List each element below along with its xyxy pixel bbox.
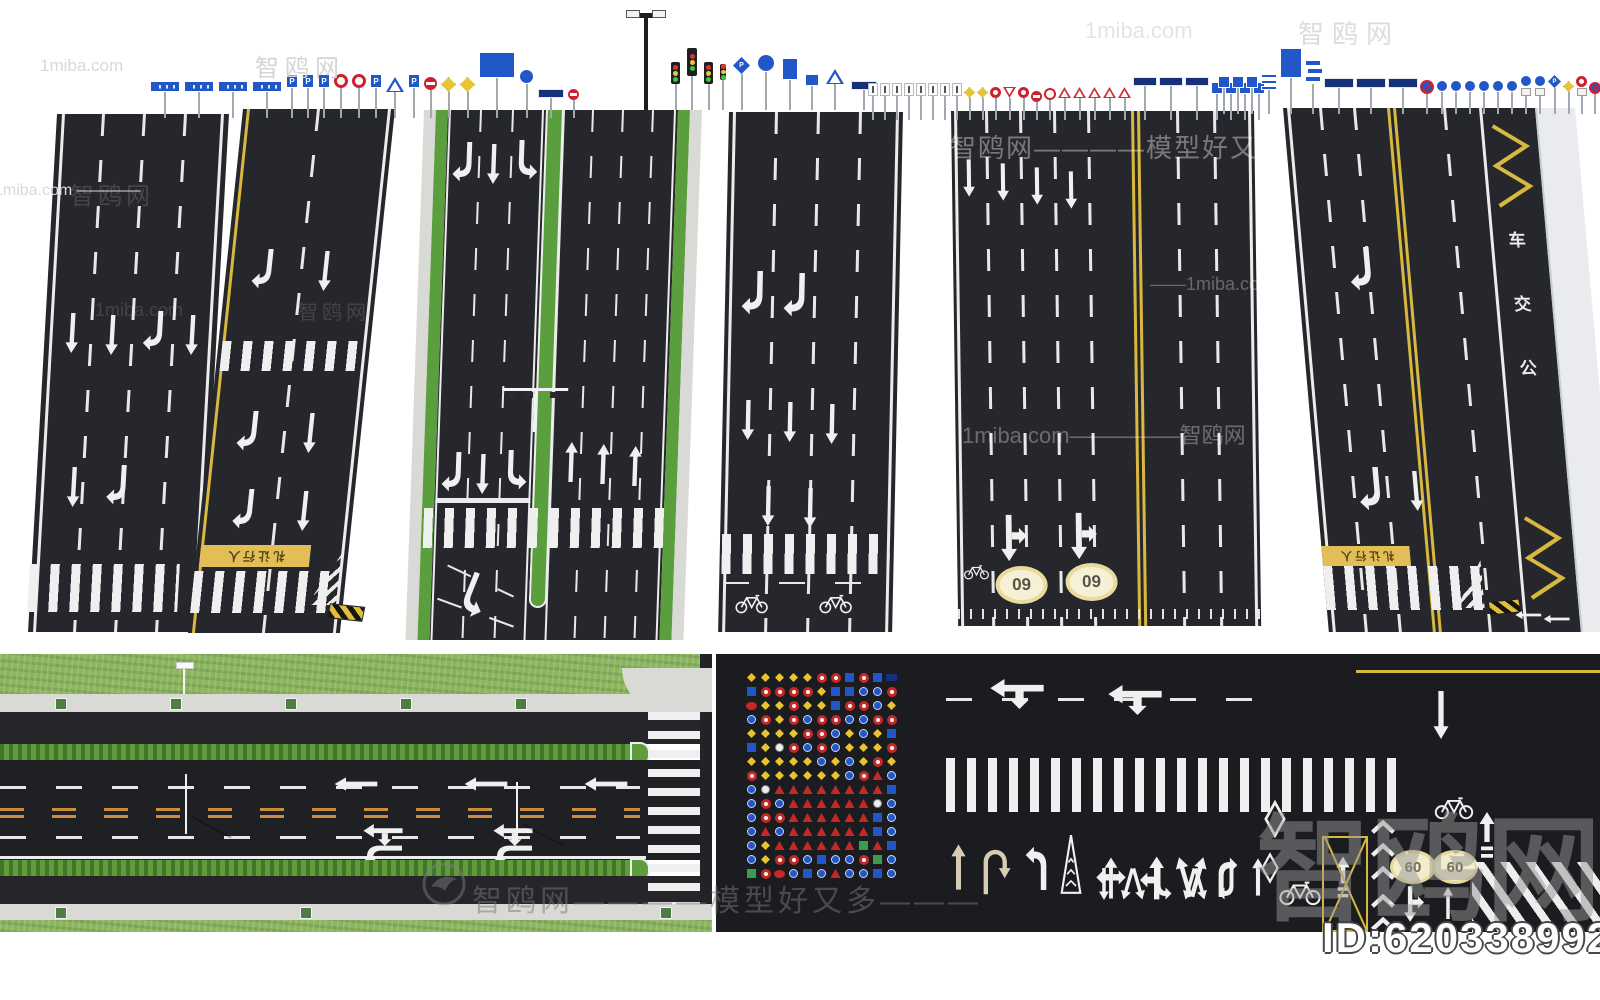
sign-decal-r [858, 672, 869, 683]
sign-decal-r [858, 700, 869, 711]
sign-navy-wide [1388, 78, 1418, 114]
sidewalk-tile [300, 907, 312, 919]
crosswalk [721, 534, 890, 574]
sign-decal-r [802, 686, 813, 697]
sign-decal-r [830, 714, 841, 725]
arrow-ahead-bars [1478, 810, 1496, 862]
sign-decal-r [886, 686, 897, 697]
lamp-pole [185, 774, 187, 834]
arrow-straight [760, 484, 776, 528]
sign-decal-y [886, 700, 897, 711]
sign-decal-b [844, 756, 855, 767]
sign-decal-g [872, 854, 883, 865]
speed-bump [327, 603, 366, 622]
arrow-marking-strip-2 [1098, 858, 1234, 906]
sign-decal-t [830, 840, 841, 851]
sign-circle-blue-lg [757, 54, 775, 110]
sign-decal-B [746, 686, 757, 697]
lane-line [1248, 111, 1258, 626]
sign-decal-y [816, 770, 827, 781]
sign-signal-tall [687, 48, 697, 110]
arrow-turn [1356, 466, 1382, 512]
sign-group-far-right: P [1218, 44, 1600, 114]
sign-decal-t [830, 868, 841, 879]
sign-no-entry-sm [1031, 91, 1042, 120]
diamond-marking [1264, 800, 1286, 838]
sign-circle-blue-sm [1450, 80, 1462, 114]
sign-decal-r [816, 742, 827, 753]
sign-decal-y [760, 756, 771, 767]
road-arrow-fork-down [1122, 862, 1144, 906]
crosswalk [190, 571, 334, 613]
sign-decal-B [746, 742, 757, 753]
sign-decal-B [816, 854, 827, 865]
lane-line [73, 114, 105, 632]
arrow-straight [1064, 169, 1079, 211]
sign-ring-red-sm [1018, 87, 1029, 120]
sign-decal-e [746, 700, 757, 711]
sidewalk-tile [55, 698, 67, 710]
sign-decal-B [886, 728, 897, 739]
arrow-turn [1347, 246, 1373, 292]
sign-decal-B [830, 686, 841, 697]
sign-warn-diamond-sm [1563, 81, 1574, 114]
sign-decal-y [788, 672, 799, 683]
sign-decal-w [760, 784, 771, 795]
lamp-head [176, 662, 194, 669]
grass-strip [0, 654, 712, 694]
sign-decal-b [746, 812, 757, 823]
sign-decal-r [872, 756, 883, 767]
sign-decal-B [844, 672, 855, 683]
sign-decal-b [746, 840, 757, 851]
sign-decal-t [802, 798, 813, 809]
arrow-straight [782, 400, 798, 444]
sign-decal-b [886, 854, 897, 865]
sign-decal-b [802, 742, 813, 753]
sign-decal-t [788, 798, 799, 809]
sign-decal-r [886, 714, 897, 725]
sign-decal-t [816, 826, 827, 837]
sign-board-blue-tall [782, 58, 798, 110]
arrow-turn [250, 247, 275, 291]
bicycle-marking [963, 563, 989, 580]
sign-decal-r [746, 770, 757, 781]
sign-lane-sign [904, 83, 914, 120]
sign-circle-blue-sm [1506, 80, 1518, 114]
sign-decal-B [830, 700, 841, 711]
arrow-straight-left [1107, 685, 1163, 715]
sign-sq-blue [1232, 76, 1244, 114]
hedge-strip [0, 860, 632, 876]
sign-decal-b [844, 714, 855, 725]
sign-decal-B [872, 868, 883, 879]
sign-z-sign [1304, 58, 1322, 114]
sign-decal-b [788, 868, 799, 879]
sidewalk-tile [400, 698, 412, 710]
sign-decal-y [774, 756, 785, 767]
sign-decal-B [872, 812, 883, 823]
yield-text: 礼让行人 [1337, 548, 1394, 564]
arrow-straight [464, 776, 508, 792]
sign-ring-red-sm [990, 87, 1001, 120]
sign-decal-y [872, 728, 883, 739]
sign-decal-r [886, 742, 897, 753]
sign-decal-t [858, 826, 869, 837]
sign-decal-y [746, 728, 757, 739]
arrow-straight [475, 452, 492, 496]
sign-decal-r [816, 728, 827, 739]
arrow-turn [142, 310, 164, 352]
sign-decal-y [774, 714, 785, 725]
sign-decal-y [746, 756, 757, 767]
sign-lane-sign [880, 83, 890, 120]
lane-line [1176, 111, 1186, 626]
arrow-turn [235, 409, 260, 453]
road-panel-6: 车 交 公 礼让行人 [1283, 108, 1600, 632]
sign-circle-blue [519, 69, 534, 118]
sign-decal-y [760, 840, 771, 851]
diamond-marking [1261, 852, 1279, 884]
sign-decal-y [844, 728, 855, 739]
sign-pair-ped [1534, 75, 1546, 114]
sign-decal-b [746, 714, 757, 725]
arrow-turn [441, 450, 463, 494]
sign-decal-B [802, 868, 813, 879]
yield-pedestrian-marking: 礼让行人 [199, 545, 311, 567]
center-line-yellow [0, 808, 640, 811]
sign-decal-y [844, 742, 855, 753]
sign-decal-t [844, 798, 855, 809]
bus-lane-char: 车 [1507, 226, 1526, 251]
road-arrow-turn-down [1156, 862, 1172, 906]
arrow-turn [517, 138, 539, 182]
lane-line [1053, 111, 1063, 626]
arrow-straight [824, 402, 840, 446]
lane-line [114, 114, 146, 632]
arrow-straight [627, 444, 644, 488]
sign-decal-y [774, 728, 785, 739]
sign-decal-B [886, 840, 897, 851]
sign-dir-blue [218, 81, 248, 118]
arrow-straight [584, 776, 628, 792]
sign-dir-blue [252, 81, 282, 118]
road-arrow-turn [1025, 830, 1047, 906]
sign-decal-r [788, 714, 799, 725]
sign-decal-t [844, 812, 855, 823]
median-cap [529, 548, 549, 608]
sign-decal-e [774, 868, 785, 879]
bus-lane-char: 公 [1519, 354, 1538, 379]
lamp-pole [183, 666, 185, 694]
sign-decal-grid [746, 672, 897, 879]
sign-decal-b [886, 868, 897, 879]
sign-decal-b [774, 798, 785, 809]
arrow-straight [802, 486, 818, 530]
road-panel-3 [405, 110, 702, 640]
bus-lane-char: 交 [1513, 290, 1532, 315]
sign-decal-t [872, 840, 883, 851]
sign-decal-r [872, 714, 883, 725]
hedge-strip [0, 744, 632, 760]
sign-board-blue-sm [805, 74, 819, 110]
sign-decal-y [802, 700, 813, 711]
sign-decal-t [872, 784, 883, 795]
sign-no-entry-sm [568, 89, 579, 118]
sign-decal-r [788, 686, 799, 697]
sign-decal-b [886, 798, 897, 809]
center-line-yellow [0, 815, 640, 818]
road-arrow-bike [1278, 878, 1322, 906]
lane-line [1213, 111, 1223, 626]
sign-dir-blue [150, 81, 180, 118]
lane-line [155, 114, 187, 632]
road-arrow-turn-right-down [1218, 862, 1234, 906]
sign-warn-diamond [460, 77, 475, 118]
crosswalk [27, 564, 180, 612]
road-arrow-cone [1060, 822, 1082, 906]
sign-decal-r [760, 812, 771, 823]
sign-decal-y [746, 672, 757, 683]
speed-limit-oval: 09 [995, 566, 1048, 604]
crosswalk [423, 508, 674, 548]
sign-lane-sign [928, 83, 938, 120]
arrow-straight [1543, 614, 1570, 624]
sign-group-left: PPPPP [150, 52, 579, 118]
sign-decal-b [858, 728, 869, 739]
lamp-pole [516, 782, 518, 842]
sign-decal-y [760, 700, 771, 711]
sidewalk [0, 694, 712, 712]
sign-decal-y [774, 770, 785, 781]
sign-p-sign: P [408, 74, 420, 118]
arrow-straight [65, 466, 82, 508]
arrow-turn [741, 270, 764, 316]
sign-decal-b [858, 714, 869, 725]
sign-ring-red [334, 74, 348, 118]
sign-decal-y [760, 728, 771, 739]
arrow-straight-left [360, 824, 406, 846]
sign-decal-B [872, 826, 883, 837]
sign-decal-y [816, 700, 827, 711]
arrow-turn [105, 464, 127, 506]
bicycle-marking [734, 592, 768, 614]
sign-circle-blue-sm [1464, 80, 1476, 114]
sign-decal-t [788, 812, 799, 823]
sign-decal-b [830, 742, 841, 753]
sign-decal-y [760, 742, 771, 753]
sign-gantry-navy [1185, 77, 1209, 120]
sign-decal-t [816, 798, 827, 809]
sign-circle-blue-sm [1478, 80, 1490, 114]
sign-decal-y [788, 756, 799, 767]
arrow-straight-left [1071, 511, 1098, 561]
marking-library-panel: 60 60 [716, 654, 1600, 932]
sign-decal-b [886, 812, 897, 823]
road-arrow-fork-down [1184, 862, 1206, 906]
sign-decal-t [830, 784, 841, 795]
arrow-straight [962, 157, 977, 199]
sign-decal-y [886, 756, 897, 767]
sign-gantry-navy [1133, 77, 1157, 120]
sign-decal-r [774, 812, 785, 823]
road-arrow-uturn-tan [980, 836, 1012, 906]
sign-decal-b [816, 756, 827, 767]
arrow-straight [1432, 690, 1450, 740]
sign-decal-r [760, 798, 771, 809]
sign-decal-t [774, 840, 785, 851]
sign-p-diamond: P [733, 57, 750, 110]
side-road [0, 876, 712, 904]
sign-decal-y [802, 672, 813, 683]
arrow-straight [183, 314, 200, 356]
sign-decal-y [816, 686, 827, 697]
sign-decal-r [816, 672, 827, 683]
sign-lane-sign [952, 83, 962, 120]
speed-limit-text: 60 [1405, 859, 1422, 876]
road-panel-5: 09 09 [951, 111, 1261, 626]
sign-lane-sign [916, 83, 926, 120]
signal-gantry [501, 388, 573, 432]
sign-warn-diamond-sm [977, 87, 988, 120]
sign-decal-r [844, 700, 855, 711]
sidewalk-tile [170, 698, 182, 710]
sign-navy-wide [1324, 78, 1354, 114]
sign-tri-warn [1103, 87, 1116, 120]
sign-decal-b [746, 784, 757, 795]
sign-decal-b [844, 770, 855, 781]
street-panel [0, 654, 712, 932]
sign-tri-warn [1073, 87, 1086, 120]
yield-pedestrian-marking: 礼让行人 [1321, 546, 1411, 566]
sign-group-right [868, 58, 1265, 120]
chevron-markings [1368, 820, 1398, 880]
sign-decal-r [858, 854, 869, 865]
sign-decal-y [774, 700, 785, 711]
sign-tri-crossing [826, 69, 844, 110]
sign-decal-g [746, 868, 757, 879]
sign-decal-B [886, 784, 897, 795]
sign-group-middle: P [628, 8, 877, 110]
sign-signal-slim [720, 64, 726, 110]
sign-gantry-navy [1159, 77, 1183, 120]
sign-decal-w [774, 742, 785, 753]
arrow-straight [996, 161, 1011, 203]
sign-decal-r [788, 742, 799, 753]
sign-decal-t [858, 812, 869, 823]
sign-decal-y [872, 742, 883, 753]
sign-p-sign: P [286, 74, 298, 118]
sign-decal-b [844, 868, 855, 879]
sign-sq-blue [1246, 76, 1258, 114]
sign-red-pair [1576, 76, 1587, 114]
sign-decal-y [858, 756, 869, 767]
sign-decal-g [858, 840, 869, 851]
sign-decal-t [858, 784, 869, 795]
sign-decal-r [774, 686, 785, 697]
sidewalk-tile [55, 907, 67, 919]
edge-line-yellow [1356, 670, 1600, 673]
sign-decal-w [872, 798, 883, 809]
side-road [0, 712, 712, 744]
sign-decal-y [760, 854, 771, 865]
sign-warn-diamond-sm [964, 87, 975, 120]
sign-decal-r [760, 714, 771, 725]
sign-dir-navy-sm [538, 89, 564, 118]
sign-pair-bike [1520, 75, 1532, 114]
lane-line [0, 786, 640, 789]
sign-circle-blue-sm [1492, 80, 1504, 114]
arrow-straight [1406, 468, 1425, 514]
sign-circle-blue-sm [1436, 80, 1448, 114]
sign-lane-sign [940, 83, 950, 120]
stop-line [435, 498, 530, 503]
arrow-turn [231, 487, 256, 531]
arrow-straight [740, 398, 756, 442]
sign-decal-y [760, 672, 771, 683]
sign-decal-b [830, 728, 841, 739]
sign-street-lamp [628, 13, 664, 110]
watermark: 1miba.com [1085, 18, 1193, 44]
lane-line [985, 111, 995, 626]
sign-decal-b [886, 770, 897, 781]
road-panel-4 [718, 112, 903, 632]
cr osswalk-vertical [648, 712, 700, 904]
sign-signal-3 [704, 62, 713, 110]
sign-decal-r [802, 728, 813, 739]
arrow-straight-left [1001, 513, 1028, 563]
arrow-straight [334, 776, 378, 792]
sign-tri-warn [1088, 87, 1101, 120]
sign-decal-t [844, 784, 855, 795]
bus-stop-zigzag [1521, 516, 1568, 600]
grass-strip [0, 920, 712, 932]
bicycle-marking [818, 592, 852, 614]
sign-decal-y [830, 770, 841, 781]
sign-ring-open [1044, 88, 1056, 120]
sign-decal-y [788, 770, 799, 781]
bus-stop-zigzag [1488, 124, 1535, 208]
sign-decal-t [858, 798, 869, 809]
sign-decal-b [858, 686, 869, 697]
arrow-straight-left [989, 679, 1045, 709]
sign-decal-y [802, 756, 813, 767]
sign-p-sign: P [302, 74, 314, 118]
sign-decal-r [760, 868, 771, 879]
sign-decal-b [830, 854, 841, 865]
sign-warn-diamond [441, 77, 456, 118]
sign-decal-y [830, 756, 841, 767]
sign-tri-warn [1058, 87, 1071, 120]
sign-decal-b [872, 700, 883, 711]
sign-decal-b [746, 854, 757, 865]
arrow-straight [595, 442, 612, 486]
sign-tri-warn [1118, 87, 1131, 120]
sign-p-sign: P [370, 74, 382, 118]
sign-decal-t [788, 840, 799, 851]
sign-slashes [1420, 80, 1434, 114]
sign-no-park [1589, 82, 1600, 114]
sign-decal-y [760, 770, 771, 781]
speed-limit-oval: 09 [1065, 563, 1118, 601]
sign-decal-t [774, 784, 785, 795]
lane-line [723, 582, 887, 584]
sign-decal-t [802, 826, 813, 837]
road-arrow-straight-down [1098, 862, 1110, 906]
sign-decal-y [774, 672, 785, 683]
sidewalk-tile [285, 698, 297, 710]
sign-decal-t [788, 826, 799, 837]
